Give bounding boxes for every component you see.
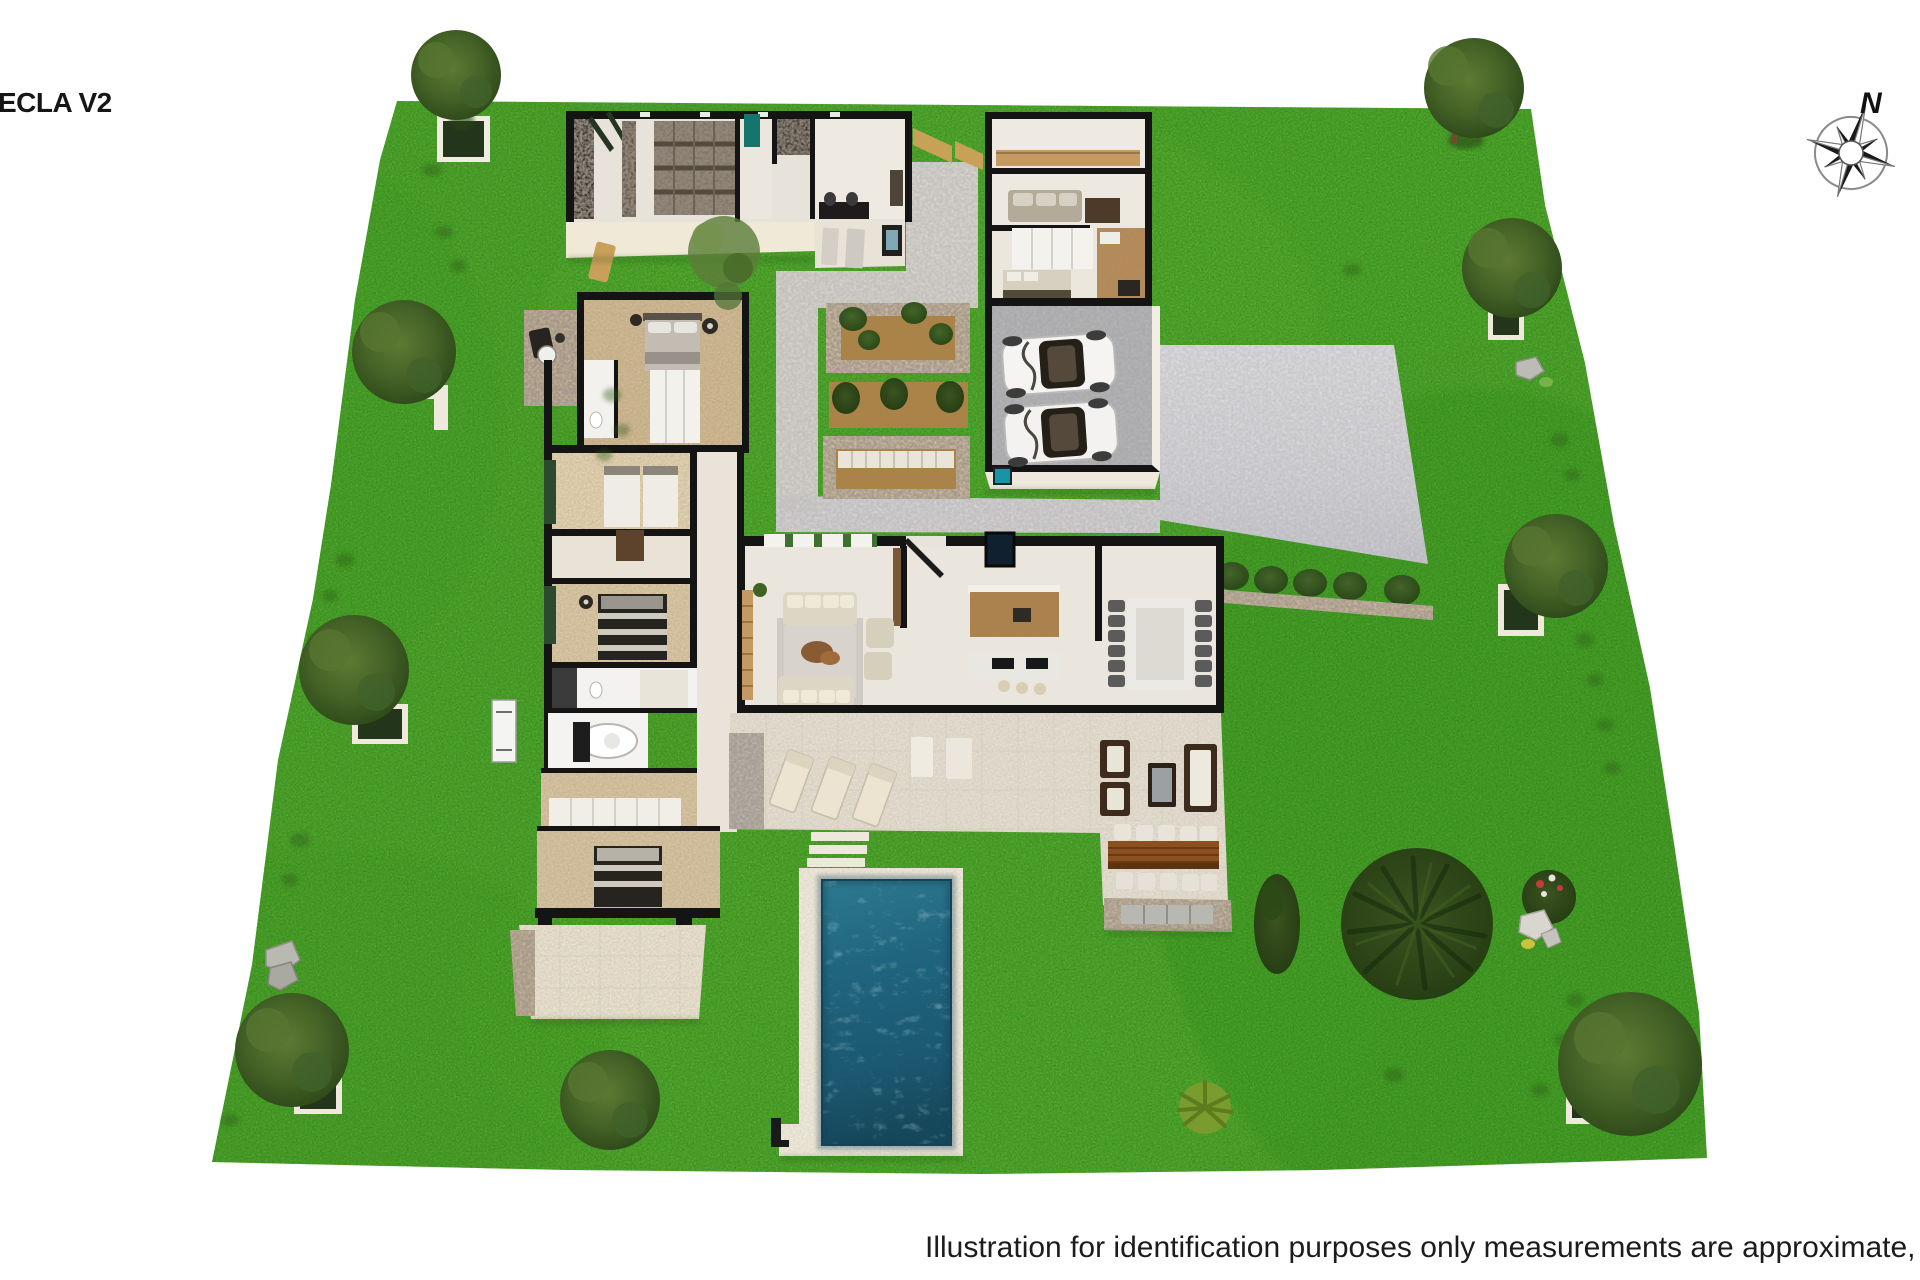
svg-text:N: N xyxy=(1860,87,1883,120)
svg-text:Illustration for identificatio: Illustration for identification purposes… xyxy=(925,1231,1920,1264)
svg-text:ECLA V2: ECLA V2 xyxy=(0,87,112,118)
